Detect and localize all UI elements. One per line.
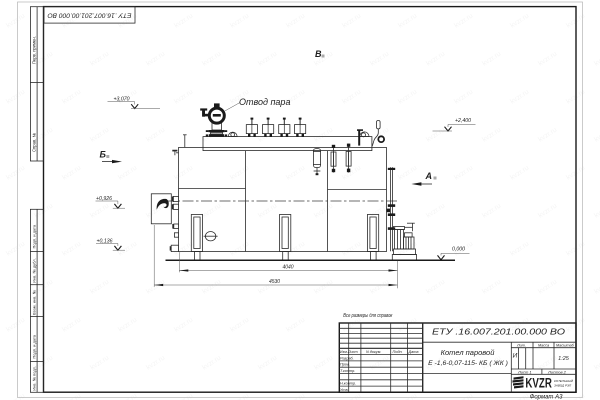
- svg-text:Н.контр.: Н.контр.: [340, 382, 356, 386]
- svg-text:В: В: [315, 49, 322, 59]
- svg-text:Изм.Лист: Изм.Лист: [340, 350, 358, 354]
- svg-text:N докум.: N докум.: [366, 350, 381, 354]
- svg-text:Подп. и дата: Подп. и дата: [32, 224, 37, 248]
- svg-text:Дата: Дата: [408, 350, 419, 354]
- svg-text:И: И: [513, 353, 518, 360]
- svg-text:Взам. инв. №: Взам. инв. №: [32, 290, 37, 315]
- svg-text:1:25: 1:25: [558, 356, 570, 362]
- svg-text:Подп. и дата: Подп. и дата: [32, 334, 37, 358]
- svg-text:Справ. №: Справ. №: [32, 132, 37, 152]
- svg-text:А: А: [425, 171, 433, 181]
- svg-text:Отвод пара: Отвод пара: [239, 97, 290, 107]
- svg-text:Пров.: Пров.: [340, 363, 350, 367]
- svg-text:ЕТУ .16.007.201.00.000 ВО: ЕТУ .16.007.201.00.000 ВО: [432, 326, 565, 336]
- svg-text:Б: Б: [100, 150, 107, 160]
- svg-text:Подп.: Подп.: [393, 350, 403, 354]
- svg-text:4040: 4040: [282, 265, 293, 271]
- svg-text:Лист 1: Лист 1: [517, 369, 532, 374]
- svg-text:Разраб.: Разраб.: [340, 356, 354, 360]
- svg-text:KVZR: KVZR: [525, 375, 552, 390]
- svg-text:Утв.: Утв.: [340, 388, 349, 392]
- svg-text:0,000: 0,000: [452, 247, 465, 253]
- svg-text:Формат А3: Формат А3: [530, 394, 563, 400]
- svg-text:Перв. примен.: Перв. примен.: [32, 36, 37, 64]
- svg-text:Инв. № подл.: Инв. № подл.: [32, 366, 37, 391]
- svg-text:+2,400: +2,400: [455, 118, 471, 124]
- svg-text:Инв. № дубл.: Инв. № дубл.: [32, 258, 37, 283]
- svg-text:Все размеры для справок: Все размеры для справок: [343, 313, 393, 319]
- svg-text:Листов 2: Листов 2: [547, 369, 567, 374]
- svg-text:Лит.: Лит.: [516, 344, 526, 348]
- svg-text:ЕТУ .16.007.201.00.000 ВО: ЕТУ .16.007.201.00.000 ВО: [47, 12, 132, 19]
- svg-text:Масштаб: Масштаб: [556, 344, 575, 348]
- svg-text:Т.контр.: Т.контр.: [340, 369, 355, 373]
- svg-text:Масса: Масса: [538, 344, 549, 348]
- svg-text:Котел паровой: Котел паровой: [441, 348, 496, 357]
- svg-text:КОТЕЛЬНЫЙ: КОТЕЛЬНЫЙ: [554, 379, 574, 383]
- svg-text:4530: 4530: [269, 279, 280, 285]
- svg-text:Е -1,6-0,07-115- КБ ( ЖК ): Е -1,6-0,07-115- КБ ( ЖК ): [428, 360, 508, 367]
- svg-text:ЗАВОД РЭП: ЗАВОД РЭП: [554, 384, 572, 388]
